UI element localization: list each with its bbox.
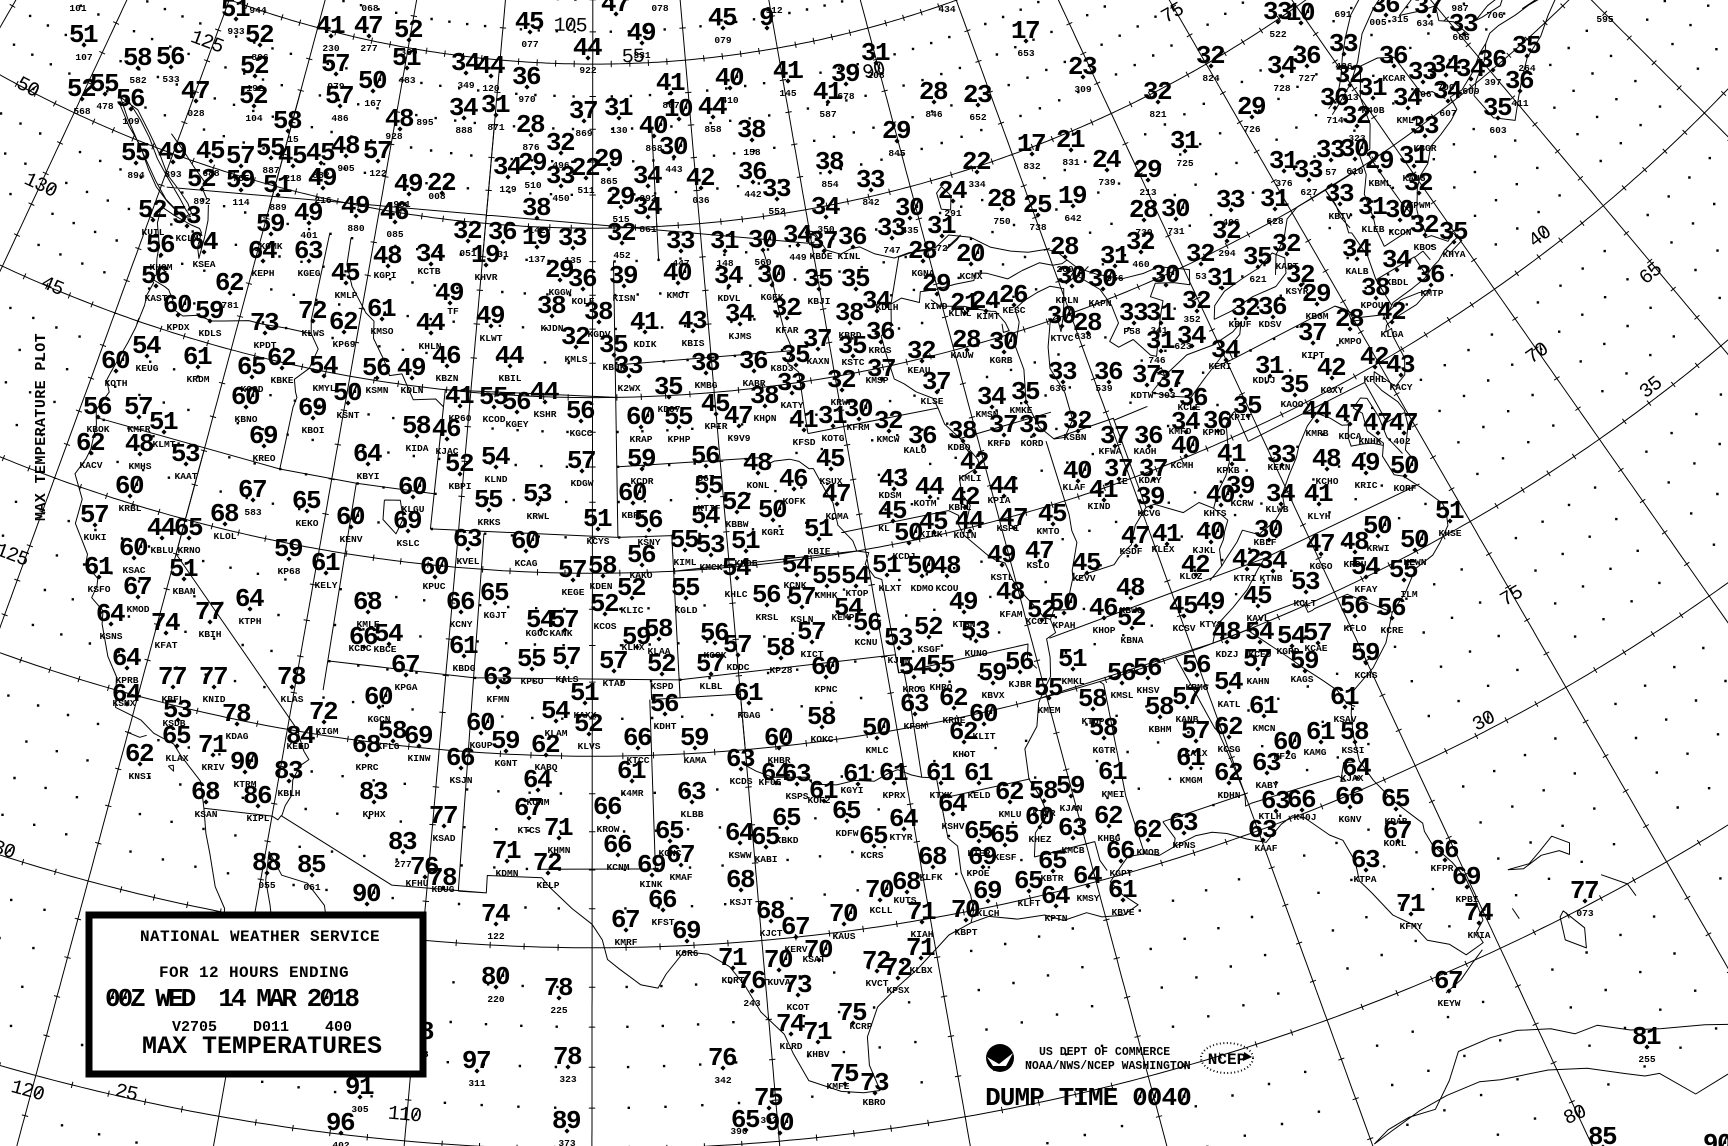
svg-text:KMHS: KMHS xyxy=(128,461,151,472)
svg-text:606: 606 xyxy=(1414,89,1432,100)
svg-text:KONL: KONL xyxy=(746,480,769,491)
svg-text:35: 35 xyxy=(1512,31,1541,61)
svg-text:KCON: KCON xyxy=(1388,227,1411,238)
svg-text:KMAF: KMAF xyxy=(669,872,692,883)
svg-text:KSPI: KSPI xyxy=(996,523,1019,534)
svg-text:KAMA: KAMA xyxy=(683,755,706,766)
svg-text:78: 78 xyxy=(553,1042,582,1072)
svg-text:213: 213 xyxy=(1139,187,1157,198)
svg-text:KMFE: KMFE xyxy=(826,1081,849,1092)
svg-text:928: 928 xyxy=(385,131,403,142)
svg-text:KACV: KACV xyxy=(79,460,102,471)
svg-text:KSAN: KSAN xyxy=(194,809,217,820)
svg-text:713: 713 xyxy=(1341,92,1359,103)
svg-text:868: 868 xyxy=(645,143,663,154)
svg-text:KP60: KP60 xyxy=(448,413,471,424)
svg-text:31: 31 xyxy=(1358,192,1387,222)
svg-text:44: 44 xyxy=(147,513,176,543)
svg-text:821: 821 xyxy=(1149,109,1167,120)
svg-text:88: 88 xyxy=(252,848,281,878)
svg-text:36: 36 xyxy=(866,317,895,347)
svg-text:KLFT: KLFT xyxy=(1017,898,1040,909)
svg-text:KHMN: KHMN xyxy=(547,845,570,856)
svg-text:KSAC: KSAC xyxy=(122,565,145,576)
svg-text:KTAD: KTAD xyxy=(602,678,625,689)
svg-text:31: 31 xyxy=(1170,126,1199,156)
svg-text:62: 62 xyxy=(125,739,154,769)
svg-text:17: 17 xyxy=(1017,129,1045,159)
svg-text:55: 55 xyxy=(1034,673,1063,703)
svg-text:905: 905 xyxy=(337,163,355,174)
svg-text:51: 51 xyxy=(169,554,198,584)
svg-text:393: 393 xyxy=(760,1115,778,1126)
svg-text:KCMH: KCMH xyxy=(1170,460,1193,471)
svg-text:KMKE: KMKE xyxy=(1009,405,1032,416)
svg-text:KPHX: KPHX xyxy=(362,809,385,820)
svg-text:KMCK: KMCK xyxy=(699,562,722,573)
svg-text:KSFO: KSFO xyxy=(87,584,110,595)
svg-text:294: 294 xyxy=(1218,248,1236,259)
svg-text:KGAG: KGAG xyxy=(737,710,760,721)
svg-text:842: 842 xyxy=(862,197,880,208)
svg-text:KJAX: KJAX xyxy=(1340,773,1363,784)
svg-text:35: 35 xyxy=(1439,217,1468,247)
svg-text:KSUX: KSUX xyxy=(819,476,842,487)
svg-text:56: 56 xyxy=(156,42,185,72)
svg-text:58: 58 xyxy=(588,551,617,581)
svg-text:33: 33 xyxy=(1119,298,1148,328)
svg-text:US DEPT OF COMMERCE: US DEPT OF COMMERCE xyxy=(1039,1046,1170,1059)
svg-text:78: 78 xyxy=(277,662,306,692)
svg-text:33: 33 xyxy=(1294,155,1323,185)
svg-text:603: 603 xyxy=(1489,125,1507,136)
svg-text:402: 402 xyxy=(1393,436,1411,447)
svg-text:896: 896 xyxy=(251,52,269,63)
svg-text:478: 478 xyxy=(96,101,114,112)
svg-text:K8D3: K8D3 xyxy=(770,363,793,374)
svg-text:KCHS: KCHS xyxy=(1354,670,1377,681)
svg-text:KMIA: KMIA xyxy=(1467,930,1490,941)
svg-text:402: 402 xyxy=(332,1140,350,1146)
svg-text:KTPA: KTPA xyxy=(1353,874,1376,885)
svg-text:292: 292 xyxy=(639,193,657,204)
svg-text:29: 29 xyxy=(594,144,623,174)
svg-text:KCEU: KCEU xyxy=(1248,649,1271,660)
svg-text:90: 90 xyxy=(230,747,259,777)
svg-text:KMCW: KMCW xyxy=(876,434,899,445)
svg-text:KFLO: KFLO xyxy=(1343,623,1366,634)
svg-text:552: 552 xyxy=(768,206,786,217)
svg-text:078: 078 xyxy=(651,3,669,14)
svg-text:KPNS: KPNS xyxy=(1172,840,1195,851)
svg-text:44: 44 xyxy=(530,377,559,407)
svg-text:KIGM: KIGM xyxy=(315,726,338,737)
svg-text:58: 58 xyxy=(402,411,431,441)
svg-text:KFHU: KFHU xyxy=(405,878,428,889)
svg-text:KJAC: KJAC xyxy=(435,446,458,457)
svg-text:KTYR: KTYR xyxy=(889,832,912,843)
svg-text:28: 28 xyxy=(1050,232,1079,262)
svg-text:55: 55 xyxy=(670,525,699,555)
svg-text:KRKS: KRKS xyxy=(477,517,500,528)
svg-text:KFZG: KFZG xyxy=(1273,751,1296,762)
svg-text:KMKL: KMKL xyxy=(1061,676,1084,687)
svg-text:KALS: KALS xyxy=(555,674,578,685)
svg-text:KDLS: KDLS xyxy=(198,328,221,339)
svg-text:KAPN: KAPN xyxy=(1088,298,1111,309)
svg-text:58: 58 xyxy=(273,106,302,136)
svg-text:59: 59 xyxy=(256,209,285,239)
svg-text:KTCS: KTCS xyxy=(517,825,540,836)
svg-text:KGLD: KGLD xyxy=(674,605,697,616)
svg-text:57: 57 xyxy=(80,500,108,530)
svg-text:KGYI: KGYI xyxy=(840,785,863,796)
svg-text:KIDA: KIDA xyxy=(405,443,428,454)
svg-text:068: 068 xyxy=(361,3,379,14)
svg-text:KCAE: KCAE xyxy=(1304,643,1327,654)
svg-text:447: 447 xyxy=(672,258,690,269)
svg-text:49: 49 xyxy=(158,137,187,167)
svg-text:005: 005 xyxy=(1369,17,1387,28)
svg-text:KCSG: KCSG xyxy=(1217,744,1240,755)
svg-text:56: 56 xyxy=(691,441,720,471)
svg-text:KJMS: KJMS xyxy=(728,331,751,342)
svg-text:KAUW: KAUW xyxy=(950,350,973,361)
svg-text:KFSD: KFSD xyxy=(792,437,815,448)
svg-text:442: 442 xyxy=(744,189,762,200)
svg-text:23: 23 xyxy=(1068,52,1097,82)
svg-text:KLRD: KLRD xyxy=(779,1041,802,1052)
svg-text:KHLN: KHLN xyxy=(418,341,441,352)
svg-text:KGPI: KGPI xyxy=(373,270,396,281)
svg-text:KSSI: KSSI xyxy=(1341,745,1364,756)
svg-text:KSTC: KSTC xyxy=(841,357,864,368)
svg-text:KMEM: KMEM xyxy=(1037,705,1060,716)
svg-text:KPIR: KPIR xyxy=(704,421,727,432)
svg-text:496: 496 xyxy=(552,160,570,171)
svg-text:NCEP: NCEP xyxy=(1208,1051,1246,1069)
svg-text:34: 34 xyxy=(449,93,478,123)
svg-text:933: 933 xyxy=(227,26,245,37)
svg-text:KHQM: KHQM xyxy=(149,262,172,273)
svg-text:KMEI: KMEI xyxy=(1101,789,1124,800)
svg-text:64: 64 xyxy=(112,643,141,673)
svg-text:58: 58 xyxy=(1145,692,1174,722)
svg-text:59: 59 xyxy=(195,296,224,326)
svg-text:56: 56 xyxy=(362,353,391,383)
svg-text:KPUC: KPUC xyxy=(422,581,445,592)
svg-text:725: 725 xyxy=(1176,158,1194,169)
svg-text:KBLU: KBLU xyxy=(150,545,173,556)
svg-text:34: 34 xyxy=(1382,245,1411,275)
svg-text:410: 410 xyxy=(721,95,739,106)
svg-text:KPRB: KPRB xyxy=(115,675,138,686)
svg-text:KHRO: KHRO xyxy=(929,682,952,693)
svg-text:60: 60 xyxy=(626,402,655,432)
svg-text:KGTR: KGTR xyxy=(1092,745,1115,756)
svg-text:56: 56 xyxy=(1133,653,1162,683)
svg-text:831: 831 xyxy=(1062,157,1080,168)
svg-text:KABY: KABY xyxy=(1255,780,1278,791)
svg-text:KF05: KF05 xyxy=(758,777,781,788)
svg-text:609: 609 xyxy=(1462,86,1480,97)
svg-text:KGUC: KGUC xyxy=(525,628,548,639)
svg-text:KCAR: KCAR xyxy=(1382,73,1405,84)
svg-text:KLAF: KLAF xyxy=(1062,482,1085,493)
svg-text:KIND: KIND xyxy=(1087,501,1110,512)
svg-text:449: 449 xyxy=(789,252,807,263)
svg-text:KCMX: KCMX xyxy=(959,271,982,282)
svg-text:KMLT: KMLT xyxy=(1396,115,1419,126)
svg-text:KTCC: KTCC xyxy=(626,755,649,766)
svg-text:KPHP: KPHP xyxy=(667,434,690,445)
svg-text:KDAG: KDAG xyxy=(225,731,248,742)
svg-text:129: 129 xyxy=(499,184,517,195)
svg-text:KSDF: KSDF xyxy=(1119,546,1142,557)
svg-text:45: 45 xyxy=(196,136,225,166)
svg-text:56: 56 xyxy=(853,608,882,638)
svg-text:52: 52 xyxy=(245,20,274,50)
svg-text:61: 61 xyxy=(1098,757,1127,787)
svg-text:KSBN: KSBN xyxy=(1063,432,1086,443)
svg-text:56: 56 xyxy=(650,689,679,719)
svg-text:KDMO: KDMO xyxy=(910,583,933,594)
svg-text:KSLC: KSLC xyxy=(396,538,419,549)
svg-text:KABQ: KABQ xyxy=(534,762,557,773)
svg-text:KRNO: KRNO xyxy=(177,545,200,556)
svg-text:60: 60 xyxy=(420,552,449,582)
svg-text:KNSI: KNSI xyxy=(128,771,151,782)
svg-text:29: 29 xyxy=(1365,146,1394,176)
svg-text:706: 706 xyxy=(1486,10,1504,21)
svg-text:53: 53 xyxy=(696,530,725,560)
svg-text:34: 34 xyxy=(1342,234,1371,264)
svg-text:44: 44 xyxy=(476,51,505,81)
svg-text:KBNO: KBNO xyxy=(234,414,257,425)
svg-text:KLWS: KLWS xyxy=(301,328,324,339)
svg-text:43: 43 xyxy=(678,306,707,336)
svg-text:876: 876 xyxy=(522,142,540,153)
svg-text:KDMN: KDMN xyxy=(495,868,518,879)
svg-text:KFLG: KFLG xyxy=(376,741,399,752)
svg-text:KPHD: KPHD xyxy=(1202,427,1225,438)
svg-text:57: 57 xyxy=(558,555,586,585)
svg-text:KHBR: KHBR xyxy=(767,755,790,766)
svg-text:KBVE: KBVE xyxy=(1111,907,1134,918)
svg-text:KBRD: KBRD xyxy=(838,330,861,341)
svg-text:KCSV: KCSV xyxy=(1172,623,1195,634)
svg-text:653: 653 xyxy=(1017,48,1035,59)
svg-text:49: 49 xyxy=(476,301,505,331)
svg-text:KPSX: KPSX xyxy=(886,985,909,996)
svg-text:KOMK: KOMK xyxy=(259,241,282,252)
svg-text:KCGI: KCGI xyxy=(1025,616,1048,627)
svg-text:KHEZ: KHEZ xyxy=(1028,834,1051,845)
svg-text:67: 67 xyxy=(1434,966,1462,996)
svg-text:KAAF: KAAF xyxy=(1254,843,1277,854)
svg-text:85: 85 xyxy=(1588,1122,1617,1146)
svg-text:583: 583 xyxy=(244,507,262,518)
svg-text:KCOD: KCOD xyxy=(482,414,505,425)
svg-text:KSAD: KSAD xyxy=(432,833,455,844)
svg-text:NATIONAL WEATHER SERVICE: NATIONAL WEATHER SERVICE xyxy=(140,928,380,946)
svg-text:KGNC: KGNC xyxy=(658,848,681,859)
svg-text:83: 83 xyxy=(359,777,388,807)
svg-text:38: 38 xyxy=(522,193,551,223)
svg-text:32: 32 xyxy=(827,365,856,395)
svg-text:956: 956 xyxy=(1106,273,1124,284)
svg-text:48: 48 xyxy=(385,104,414,134)
svg-text:858: 858 xyxy=(704,124,722,135)
svg-text:KBNA: KBNA xyxy=(1120,635,1143,646)
svg-text:KTRM: KTRM xyxy=(233,779,256,790)
svg-text:KHSE: KHSE xyxy=(1438,528,1461,539)
svg-text:33: 33 xyxy=(856,165,885,195)
svg-text:KJAN: KJAN xyxy=(1059,803,1082,814)
svg-text:KEKO: KEKO xyxy=(295,518,318,529)
svg-text:KCLE: KCLE xyxy=(1177,402,1200,413)
svg-text:41: 41 xyxy=(316,11,345,41)
svg-text:894: 894 xyxy=(127,170,145,181)
svg-text:31: 31 xyxy=(1146,298,1175,328)
svg-text:KFRM: KFRM xyxy=(846,422,869,433)
svg-text:845: 845 xyxy=(888,148,906,159)
svg-text:KDFW: KDFW xyxy=(835,828,858,839)
svg-text:38: 38 xyxy=(691,348,720,378)
svg-text:KALB: KALB xyxy=(1345,266,1368,277)
svg-text:970: 970 xyxy=(518,94,536,105)
svg-text:KCRW: KCRW xyxy=(1230,498,1253,509)
svg-text:61: 61 xyxy=(1330,682,1359,712)
svg-text:KDVL: KDVL xyxy=(717,293,740,304)
svg-text:62: 62 xyxy=(1094,801,1123,831)
svg-text:KLVS: KLVS xyxy=(577,741,600,752)
svg-text:KCDR: KCDR xyxy=(630,476,653,487)
svg-text:NOAA/NWS/NCEP WASHINGTON: NOAA/NWS/NCEP WASHINGTON xyxy=(1025,1060,1191,1073)
svg-text:65: 65 xyxy=(174,513,203,543)
svg-text:47: 47 xyxy=(1389,408,1417,438)
svg-text:57: 57 xyxy=(567,446,595,476)
svg-text:63: 63 xyxy=(677,777,706,807)
svg-text:69: 69 xyxy=(249,421,278,451)
svg-text:KBGM: KBGM xyxy=(1305,311,1328,322)
svg-text:KRWF: KRWF xyxy=(830,397,853,408)
svg-text:67: 67 xyxy=(611,905,639,935)
svg-text:KDAB: KDAB xyxy=(1384,816,1407,827)
svg-text:47: 47 xyxy=(1363,408,1391,438)
svg-text:871: 871 xyxy=(487,122,505,133)
svg-text:KEED: KEED xyxy=(286,741,309,752)
svg-text:66: 66 xyxy=(1430,835,1459,865)
svg-text:63: 63 xyxy=(483,662,512,692)
svg-text:68: 68 xyxy=(726,865,755,895)
svg-text:KRMG: KRMG xyxy=(1185,682,1208,693)
svg-text:KLIT: KLIT xyxy=(972,731,995,742)
svg-text:KTVR: KTVR xyxy=(1032,808,1055,819)
svg-text:49: 49 xyxy=(1351,448,1380,478)
svg-text:277: 277 xyxy=(360,43,378,54)
svg-text:KCLL: KCLL xyxy=(869,905,892,916)
svg-text:397: 397 xyxy=(1484,77,1502,88)
svg-text:54: 54 xyxy=(132,331,161,361)
svg-text:628: 628 xyxy=(1266,216,1284,227)
svg-text:30: 30 xyxy=(989,327,1018,357)
svg-text:77: 77 xyxy=(158,662,186,692)
svg-text:739: 739 xyxy=(1098,177,1116,188)
svg-text:KJKL: KJKL xyxy=(1192,545,1215,556)
svg-text:869: 869 xyxy=(575,128,593,139)
svg-text:KCNM: KCNM xyxy=(606,862,629,873)
svg-text:25: 25 xyxy=(1023,190,1052,220)
svg-text:64: 64 xyxy=(1073,861,1102,891)
svg-text:55: 55 xyxy=(812,561,841,591)
svg-text:KROW: KROW xyxy=(596,824,619,835)
svg-text:KSJT: KSJT xyxy=(729,897,752,908)
svg-text:36: 36 xyxy=(838,222,867,252)
svg-text:K2WX: K2WX xyxy=(617,383,640,394)
svg-text:77: 77 xyxy=(199,662,227,692)
svg-text:61: 61 xyxy=(311,548,340,578)
svg-text:51: 51 xyxy=(1058,644,1087,674)
svg-text:638: 638 xyxy=(1074,331,1092,342)
svg-text:KOMA: KOMA xyxy=(825,511,848,522)
svg-text:51: 51 xyxy=(1435,496,1464,526)
svg-text:32: 32 xyxy=(907,336,936,366)
svg-text:36: 36 xyxy=(1416,260,1445,290)
svg-text:243: 243 xyxy=(743,998,761,1009)
svg-text:KLFK: KLFK xyxy=(919,872,942,883)
svg-text:KPRX: KPRX xyxy=(882,790,905,801)
svg-text:079: 079 xyxy=(714,35,732,46)
svg-text:107: 107 xyxy=(75,52,93,63)
svg-text:44: 44 xyxy=(495,341,524,371)
svg-text:KPGA: KPGA xyxy=(394,682,417,693)
svg-text:KGRB: KGRB xyxy=(989,355,1012,366)
svg-text:KBFF: KBFF xyxy=(621,510,644,521)
svg-text:KBZN: KBZN xyxy=(435,373,458,384)
svg-text:987: 987 xyxy=(1451,3,1469,14)
svg-text:36: 36 xyxy=(568,264,597,294)
svg-text:KTUP: KTUP xyxy=(1081,716,1104,727)
svg-text:KMYL: KMYL xyxy=(312,383,335,394)
svg-text:30: 30 xyxy=(659,132,688,162)
svg-text:895: 895 xyxy=(416,117,434,128)
svg-text:621: 621 xyxy=(1249,274,1267,285)
svg-text:KDRT: KDRT xyxy=(721,975,744,986)
svg-text:KMSP: KMSP xyxy=(865,375,888,386)
svg-text:53: 53 xyxy=(1195,271,1207,282)
svg-text:KOFK: KOFK xyxy=(782,496,805,507)
svg-text:KSLN: KSLN xyxy=(790,614,813,625)
svg-text:KLSE: KLSE xyxy=(920,396,943,407)
svg-text:KCNU: KCNU xyxy=(854,637,877,648)
svg-text:68: 68 xyxy=(353,587,382,617)
svg-text:730: 730 xyxy=(1135,227,1153,238)
svg-text:110: 110 xyxy=(387,1103,422,1129)
svg-text:36: 36 xyxy=(1478,45,1507,75)
svg-text:KSHV: KSHV xyxy=(941,821,964,832)
svg-text:56: 56 xyxy=(116,84,145,114)
svg-text:KAVL: KAVL xyxy=(1246,613,1269,624)
svg-text:KSPD: KSPD xyxy=(650,681,673,692)
svg-text:KCDS: KCDS xyxy=(729,776,752,787)
svg-text:65: 65 xyxy=(237,352,266,382)
svg-text:KBML: KBML xyxy=(1368,178,1391,189)
svg-text:KSGF: KSGF xyxy=(917,644,940,655)
svg-text:KSJN: KSJN xyxy=(449,775,472,786)
svg-text:62: 62 xyxy=(215,268,244,298)
svg-text:KLAM: KLAM xyxy=(544,728,567,739)
